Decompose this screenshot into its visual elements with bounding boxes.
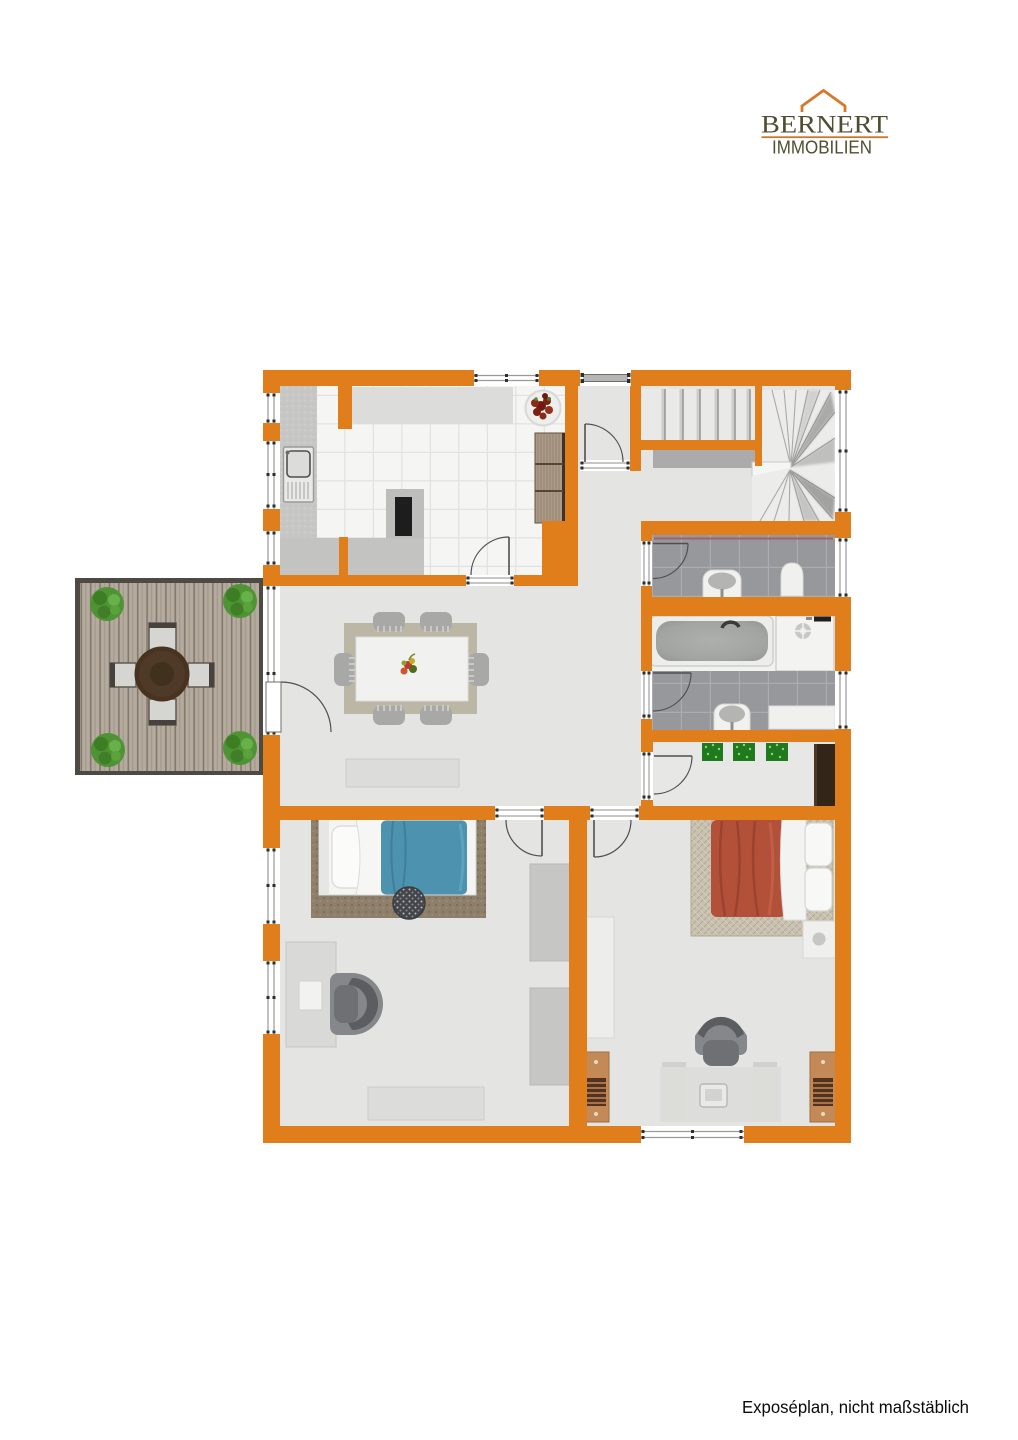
svg-text:BERNERT: BERNERT [761,112,888,139]
svg-text:IMMOBILIEN: IMMOBILIEN [772,137,872,158]
svg-text:Exposéplan, nicht maßstäblich: Exposéplan, nicht maßstäblich [742,1397,969,1417]
